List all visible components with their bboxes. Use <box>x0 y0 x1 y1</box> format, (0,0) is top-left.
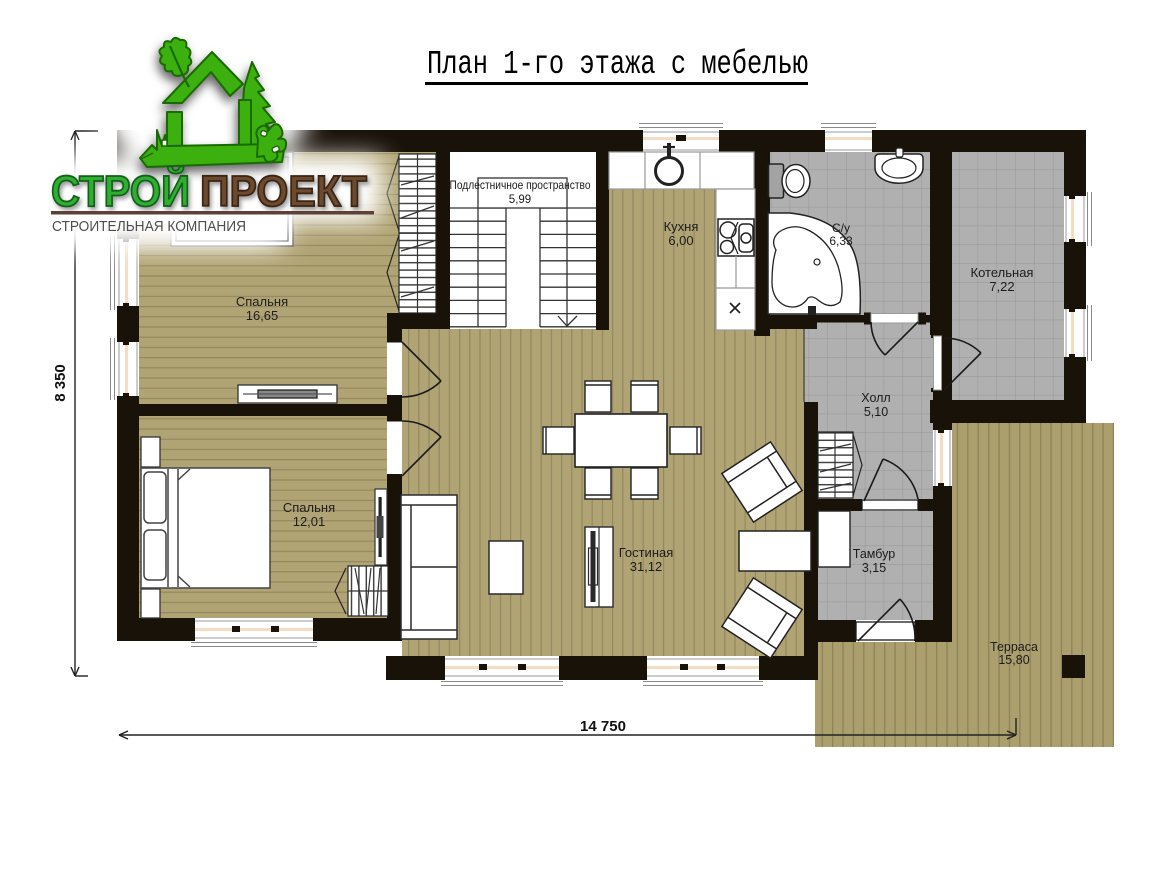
svg-text:Подлестничное пространство: Подлестничное пространство <box>450 180 591 192</box>
svg-text:Терраса: Терраса <box>990 640 1038 654</box>
svg-text:Гостиная: Гостиная <box>619 545 674 560</box>
svg-text:15,80: 15,80 <box>998 653 1029 667</box>
svg-text:7,22: 7,22 <box>989 279 1014 294</box>
svg-text:С/у: С/у <box>832 221 850 235</box>
svg-text:3,15: 3,15 <box>862 561 886 575</box>
svg-text:Холл: Холл <box>861 391 890 405</box>
svg-text:8 350: 8 350 <box>52 364 69 402</box>
svg-text:31,12: 31,12 <box>630 559 663 574</box>
svg-text:16,65: 16,65 <box>246 308 279 323</box>
svg-text:6,00: 6,00 <box>668 233 693 248</box>
svg-text:6,33: 6,33 <box>829 234 853 248</box>
svg-text:Спальня: Спальня <box>283 500 335 515</box>
svg-text:12,01: 12,01 <box>293 514 326 529</box>
svg-text:СТРОИТЕЛЬНАЯ КОМПАНИЯ: СТРОИТЕЛЬНАЯ КОМПАНИЯ <box>52 219 246 235</box>
svg-text:Тамбур: Тамбур <box>853 547 895 561</box>
svg-text:5,99: 5,99 <box>509 194 531 206</box>
svg-text:Кухня: Кухня <box>664 219 699 234</box>
svg-text:5,10: 5,10 <box>864 405 888 419</box>
svg-text:14 750: 14 750 <box>580 718 626 735</box>
svg-text:СТРОЙ: СТРОЙ <box>51 165 190 216</box>
svg-text:ПРОЕКТ: ПРОЕКТ <box>200 167 367 216</box>
svg-text:Котельная: Котельная <box>971 265 1034 280</box>
svg-text:Спальня: Спальня <box>236 294 288 309</box>
svg-text:План 1-го этажа с мебелью: План 1-го этажа с мебелью <box>427 46 808 83</box>
